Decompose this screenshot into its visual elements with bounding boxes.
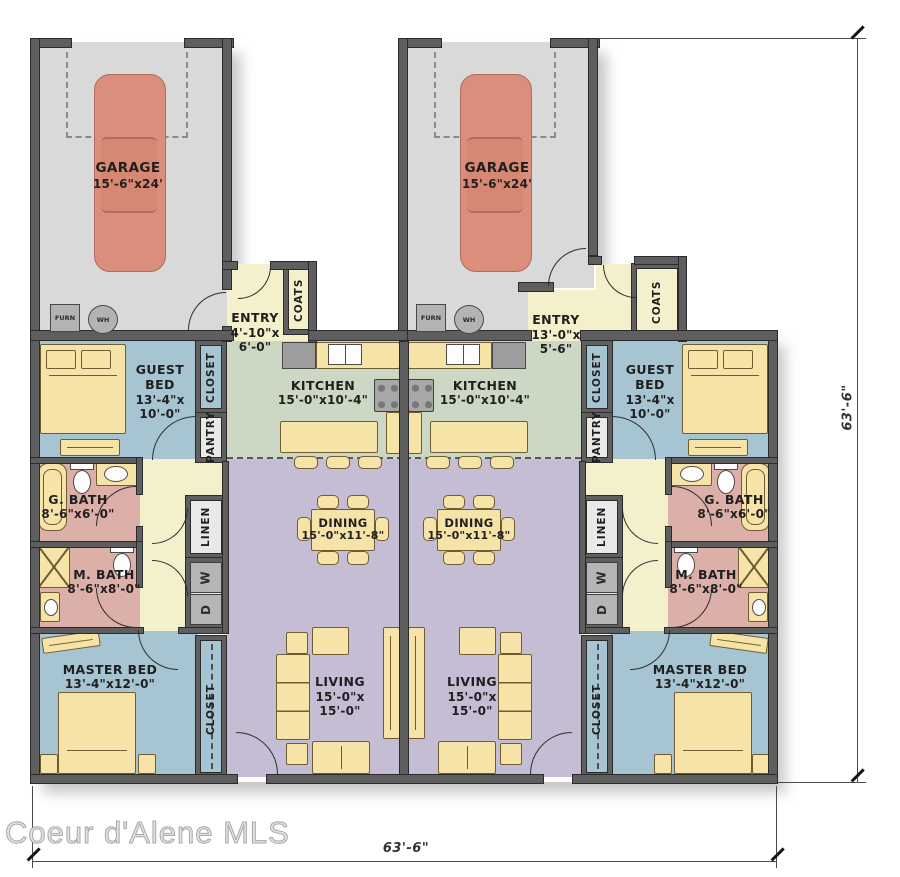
loveseat-left bbox=[312, 741, 370, 774]
wall bbox=[665, 457, 672, 495]
master-bath-left-label: M. BATH8'-6"x8'-0" bbox=[60, 564, 148, 600]
wall bbox=[582, 627, 630, 634]
water-heater-right: WH bbox=[454, 305, 484, 334]
bar-stool bbox=[326, 456, 350, 469]
water-heater-left: WH bbox=[88, 305, 118, 334]
wall bbox=[579, 461, 586, 634]
end-table bbox=[500, 632, 522, 654]
bar-stool bbox=[294, 456, 318, 469]
bar-stool bbox=[426, 456, 450, 469]
wall bbox=[30, 340, 40, 784]
armchair-left bbox=[312, 627, 349, 655]
furnace-right: FURN bbox=[416, 304, 446, 332]
pillow bbox=[81, 350, 111, 369]
guest-dresser-right bbox=[688, 439, 748, 456]
guest-bath-right-label: G. BATH8'-6"x6'-0" bbox=[684, 488, 784, 526]
guest-bed-left-bed bbox=[40, 344, 126, 434]
dining-chair bbox=[317, 551, 339, 565]
kitchen-wall-counter-left bbox=[386, 412, 400, 454]
pillow bbox=[46, 350, 76, 369]
dim-tick bbox=[771, 847, 785, 861]
bar-stool bbox=[358, 456, 382, 469]
wall bbox=[666, 457, 778, 464]
guest-closet-left-label: CLOSET bbox=[202, 350, 220, 406]
master-bed-right-label: MASTER BED13'-4"x12'-0" bbox=[642, 658, 758, 696]
sink-oval bbox=[104, 466, 128, 482]
linen-right-label: LINEN bbox=[593, 500, 611, 554]
pillow bbox=[688, 350, 718, 369]
dining-table-left: DINING15'-0"x11'-8" bbox=[311, 509, 375, 551]
wall bbox=[768, 340, 778, 784]
wall bbox=[308, 330, 408, 341]
media-unit-left bbox=[383, 627, 400, 739]
guest-bed-left-label: GUESTBED 13'-4"x10'-0" bbox=[126, 358, 194, 426]
living-left-label: LIVING15'-0"x15'-0" bbox=[307, 668, 373, 726]
wall bbox=[266, 774, 544, 784]
bar-stool bbox=[458, 456, 482, 469]
kitchen-left-label: KITCHEN15'-0"x10'-4" bbox=[253, 374, 393, 412]
dining-chair bbox=[347, 551, 369, 565]
sink-oval bbox=[680, 466, 704, 482]
dining-table-right: DINING15'-0"x11'-8" bbox=[437, 509, 501, 551]
dim-right-text: 63'-6" bbox=[841, 372, 856, 444]
nightstand bbox=[654, 754, 672, 774]
wall bbox=[30, 627, 144, 634]
dryer-right: D bbox=[586, 594, 618, 625]
guest-dresser-left bbox=[60, 439, 120, 456]
coats-right-label: COATS bbox=[648, 274, 666, 330]
watermark-mls: Coeur d'Alene MLS bbox=[5, 815, 290, 851]
bar-stool bbox=[490, 456, 514, 469]
dining-chair bbox=[317, 495, 339, 509]
kitchen-sink-left bbox=[328, 344, 362, 365]
wall bbox=[572, 774, 778, 784]
nightstand bbox=[138, 754, 156, 774]
kitchen-right-label: KITCHEN15'-0"x10'-4" bbox=[415, 374, 555, 412]
dining-chair bbox=[443, 495, 465, 509]
master-bed-left-label: MASTER BED13'-4"x12'-0" bbox=[52, 658, 168, 696]
kitchen-wall-counter-right bbox=[408, 412, 422, 454]
wall bbox=[136, 457, 143, 495]
living-right-label: LIVING15'-0"x15'-0" bbox=[439, 668, 505, 726]
kitchen-island-left bbox=[280, 421, 378, 453]
guest-bed-right-label: GUESTBED 13'-4"x10'-0" bbox=[616, 358, 684, 426]
wall bbox=[222, 461, 229, 634]
wall bbox=[178, 627, 228, 634]
living-dining-left-floor bbox=[227, 459, 403, 777]
garage-right-label: GARAGE15'-6"x24' bbox=[432, 153, 562, 199]
dim-line-bottom bbox=[33, 861, 777, 862]
wall bbox=[30, 541, 142, 548]
wall bbox=[588, 256, 602, 265]
pedestal-sink-right bbox=[748, 592, 768, 622]
pantry-right-label: PANTRY bbox=[588, 414, 606, 461]
wall bbox=[222, 38, 232, 290]
guest-closet-right-label: CLOSET bbox=[588, 350, 606, 406]
dining-chair bbox=[473, 551, 495, 565]
master-bath-right-label: M. BATH8'-6"x8'-0" bbox=[662, 564, 750, 600]
wall bbox=[30, 38, 40, 340]
dining-chair bbox=[443, 551, 465, 565]
pantry-left-label: PANTRY bbox=[202, 414, 220, 461]
dim-ext-top-right bbox=[598, 38, 866, 39]
guest-bed-right-bed bbox=[682, 344, 768, 434]
sofa-left bbox=[276, 654, 310, 740]
pillow bbox=[723, 350, 753, 369]
master-bed-left-bed bbox=[58, 692, 136, 774]
washer-right: W bbox=[586, 562, 618, 593]
guest-bath-left-label: G. BATH8'-6"x6'-0" bbox=[28, 488, 128, 526]
dim-bottom-text: 63'-6" bbox=[368, 841, 444, 856]
wall bbox=[664, 627, 778, 634]
wall bbox=[30, 774, 238, 784]
end-table bbox=[500, 743, 522, 765]
dryer-left: D bbox=[190, 594, 222, 625]
party-wall bbox=[399, 341, 409, 775]
master-closet-right-label: CLOSET bbox=[588, 682, 606, 738]
washer-left: W bbox=[190, 562, 222, 593]
dim-ext-bottom-right bbox=[778, 782, 866, 783]
dining-chair bbox=[347, 495, 369, 509]
pedestal-sink-left bbox=[40, 592, 60, 622]
wall bbox=[580, 330, 778, 341]
linen-left-label: LINEN bbox=[197, 500, 215, 554]
wall bbox=[398, 38, 408, 341]
master-bed-right-bed bbox=[674, 692, 752, 774]
wall bbox=[666, 541, 778, 548]
loveseat-right bbox=[438, 741, 496, 774]
wall bbox=[588, 38, 598, 256]
master-closet-left-label: CLOSET bbox=[202, 682, 220, 738]
wall bbox=[30, 457, 142, 464]
nightstand bbox=[40, 754, 58, 774]
end-table bbox=[286, 632, 308, 654]
armchair-right bbox=[459, 627, 496, 655]
dining-chair bbox=[473, 495, 495, 509]
wall bbox=[222, 261, 238, 270]
coats-left-label: COATS bbox=[290, 272, 308, 328]
dim-line-right bbox=[857, 39, 858, 783]
entry-right-label: ENTRY13'-0"x5'-6" bbox=[513, 308, 599, 362]
kitchen-island-right bbox=[430, 421, 528, 453]
furnace-left: FURN bbox=[50, 304, 80, 332]
garage-left-label: GARAGE15'-6"x24' bbox=[63, 153, 193, 199]
end-table bbox=[286, 743, 308, 765]
kitchen-sink-right bbox=[446, 344, 480, 365]
media-unit-right bbox=[408, 627, 425, 739]
entry-left-label: ENTRY4'-10"x6'-0" bbox=[212, 306, 298, 360]
